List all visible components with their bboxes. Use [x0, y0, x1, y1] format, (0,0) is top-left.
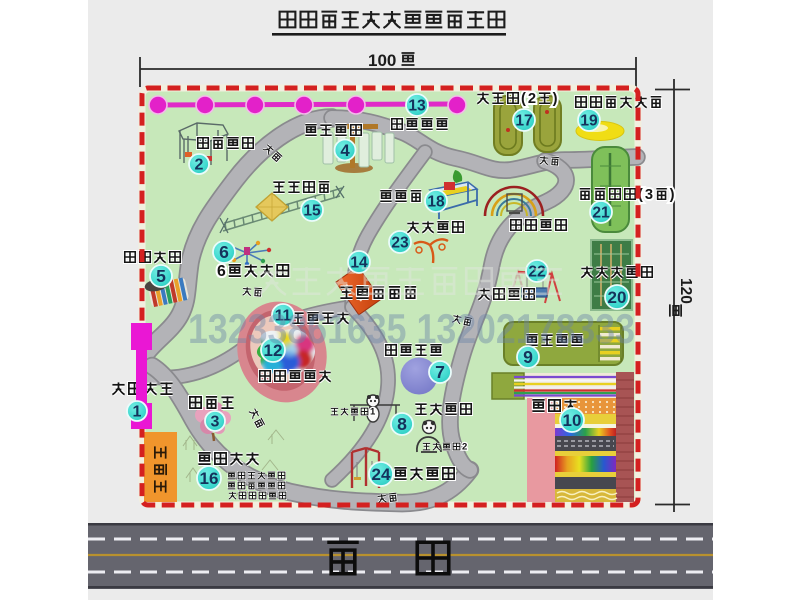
svg-text:): ) [670, 187, 675, 203]
svg-text:16: 16 [200, 469, 219, 488]
svg-text:1: 1 [370, 407, 376, 418]
svg-text:15: 15 [303, 203, 321, 220]
svg-text:4: 4 [340, 141, 350, 160]
svg-text:22: 22 [528, 264, 546, 281]
svg-text:(: ( [521, 91, 526, 107]
svg-text:23: 23 [391, 235, 409, 252]
svg-text:2: 2 [528, 91, 536, 107]
svg-text:2: 2 [195, 157, 204, 174]
svg-text:13233861635 13202178333: 13233861635 13202178333 [188, 305, 635, 352]
svg-text:17: 17 [515, 113, 532, 130]
svg-text:1: 1 [133, 404, 142, 421]
svg-text:3: 3 [645, 187, 653, 203]
svg-text:120: 120 [677, 278, 694, 304]
svg-text:2: 2 [462, 442, 467, 453]
svg-text:21: 21 [592, 205, 610, 222]
svg-text:7: 7 [435, 362, 445, 382]
svg-text:10: 10 [563, 411, 582, 430]
svg-text:13: 13 [408, 98, 426, 115]
svg-text:19: 19 [580, 113, 598, 130]
svg-text:6: 6 [217, 263, 226, 280]
svg-text:3: 3 [211, 414, 220, 431]
svg-text:18: 18 [427, 194, 445, 211]
svg-text:8: 8 [397, 414, 407, 434]
svg-text:24: 24 [372, 465, 391, 484]
svg-text:100: 100 [368, 51, 396, 70]
svg-text:5: 5 [156, 266, 166, 286]
svg-text:6: 6 [219, 242, 229, 262]
svg-text:): ) [553, 91, 558, 107]
